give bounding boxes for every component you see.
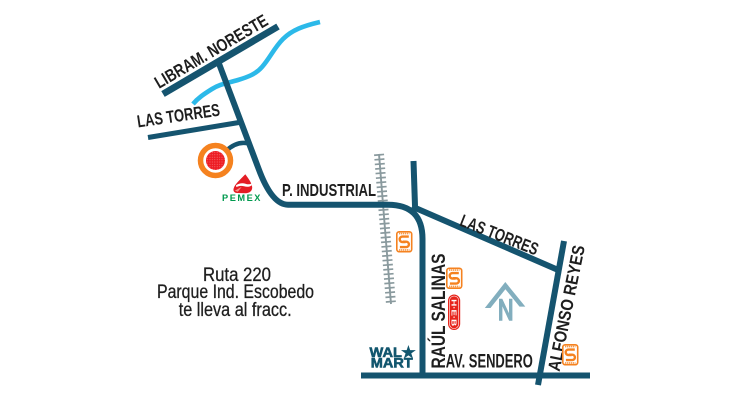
svg-text:P. INDUSTRIAL: P. INDUSTRIAL	[282, 180, 376, 200]
svg-text:te lleva al fracc.: te lleva al fracc.	[179, 300, 292, 321]
svg-text:LIBRAM. NORESTE: LIBRAM. NORESTE	[151, 10, 271, 92]
svg-text:PEMEX: PEMEX	[222, 193, 262, 204]
svg-text:H·E·B: H·E·B	[449, 299, 456, 326]
svg-text:MART: MART	[371, 355, 413, 371]
svg-text:AV. SENDERO: AV. SENDERO	[446, 352, 533, 373]
